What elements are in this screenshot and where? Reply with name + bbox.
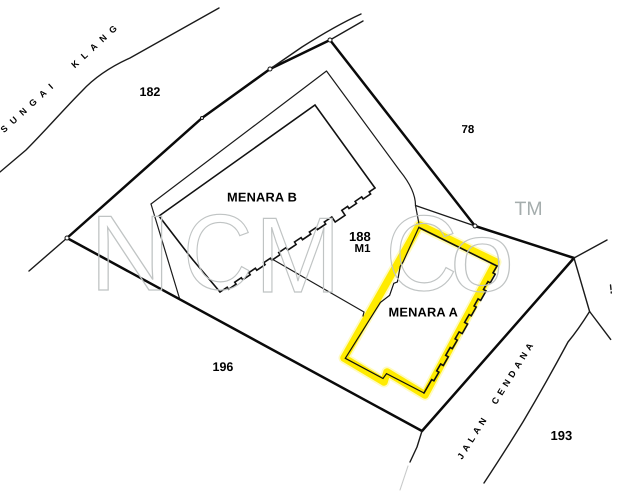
svg-text:78: 78 xyxy=(462,124,475,136)
svg-text:o: o xyxy=(450,201,514,313)
svg-text:M1: M1 xyxy=(355,243,372,255)
svg-text:188: 188 xyxy=(349,229,371,244)
svg-text:182: 182 xyxy=(140,85,161,99)
svg-text:N: N xyxy=(90,193,171,313)
svg-text:C: C xyxy=(386,193,458,313)
svg-text:193: 193 xyxy=(551,428,573,443)
svg-text:M: M xyxy=(255,195,341,315)
svg-text:C: C xyxy=(183,192,253,312)
svg-text:TM: TM xyxy=(515,198,543,220)
svg-text:196: 196 xyxy=(213,360,234,374)
